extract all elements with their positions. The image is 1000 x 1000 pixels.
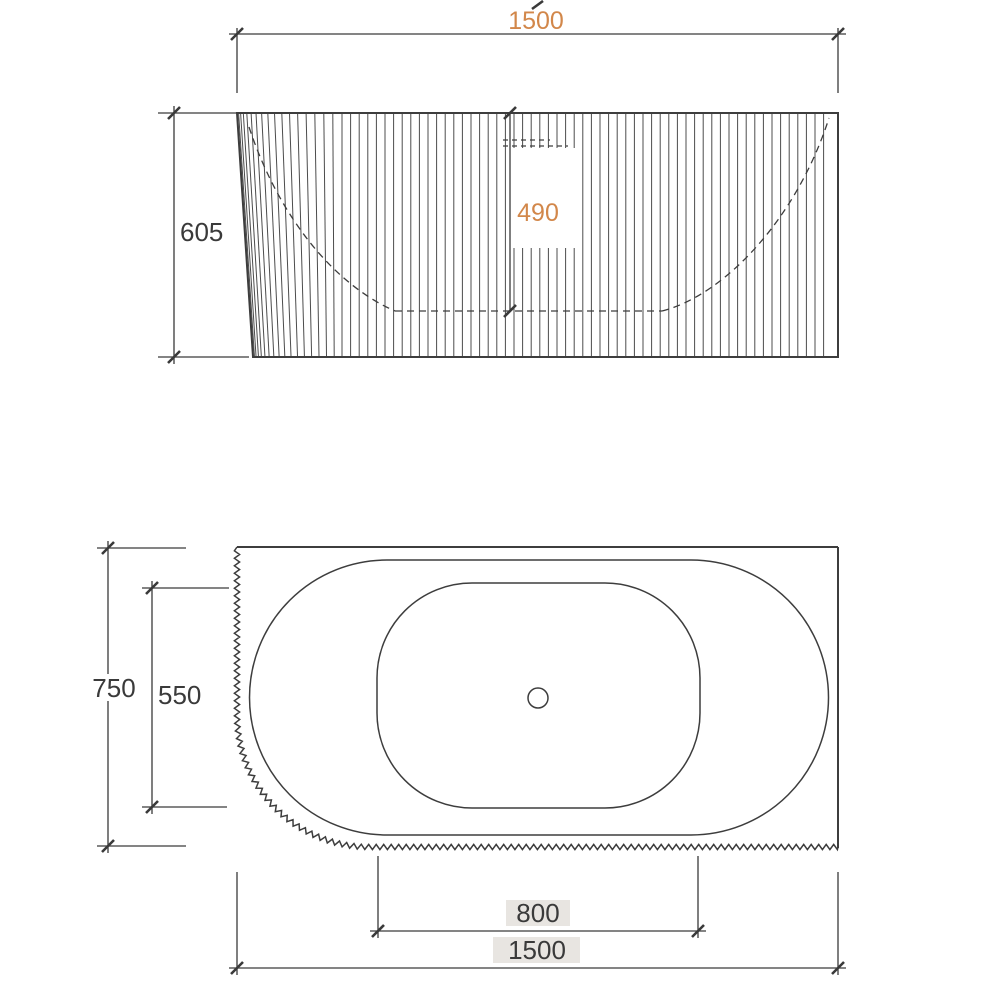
drain-waste-hole [528, 688, 548, 708]
dimension-overall-height: 605 [158, 106, 249, 364]
basin-floor-outline [377, 583, 700, 808]
dimension-label-overall-length: 1500 [508, 935, 566, 965]
flute-line [239, 113, 255, 356]
flute-line [290, 113, 298, 356]
dimension-overall-length-elevation: 1500 [229, 7, 846, 93]
drawing-svg: 1500 605 490 [0, 0, 1000, 1000]
dimension-basin-length: 800 [370, 856, 706, 938]
label-knockout [506, 148, 576, 248]
flute-line [262, 113, 274, 356]
bathtub-technical-drawing: 1500 605 490 [0, 0, 1000, 1000]
inner-rim-outline [249, 560, 828, 835]
dimension-label-internal-width: 550 [158, 680, 201, 710]
front-elevation-view: 1500 605 490 [158, 1, 846, 364]
dimension-internal-width: 550 [142, 581, 229, 814]
dimension-label-overall-height: 605 [180, 217, 223, 247]
plan-view: 750 550 800 150 [92, 541, 846, 975]
flute-line [324, 113, 327, 356]
dimension-label-basin-length: 800 [516, 898, 559, 928]
inner-profile-left-dashed [249, 127, 395, 311]
flute-line [333, 113, 334, 356]
dimension-label-overall-width: 750 [92, 673, 135, 703]
fluted-scalloped-edge [234, 547, 838, 850]
inner-profile-right-dashed [662, 118, 829, 311]
flute-line [268, 113, 279, 356]
dimension-label-internal-depth: 490 [517, 199, 559, 227]
flute-line [315, 113, 319, 356]
flute-line [306, 113, 312, 356]
dimension-label-overall-length: 1500 [508, 7, 564, 35]
